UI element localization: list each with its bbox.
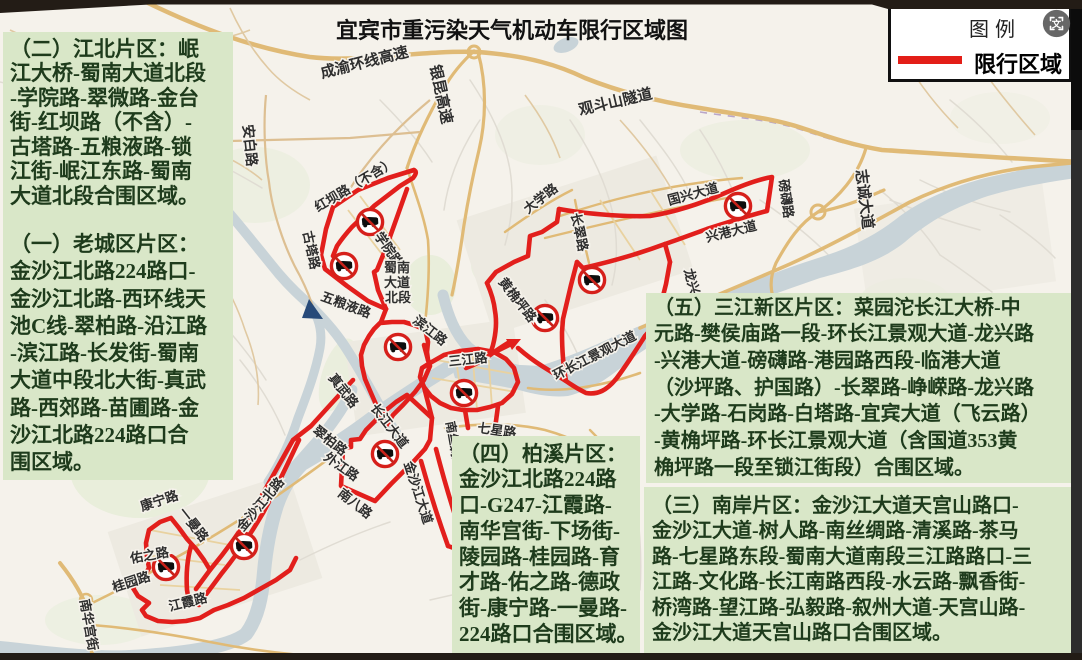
svg-text:北段: 北段 [385, 290, 411, 305]
svg-text:蜀南: 蜀南 [384, 260, 410, 275]
svg-text:大道: 大道 [384, 275, 410, 290]
